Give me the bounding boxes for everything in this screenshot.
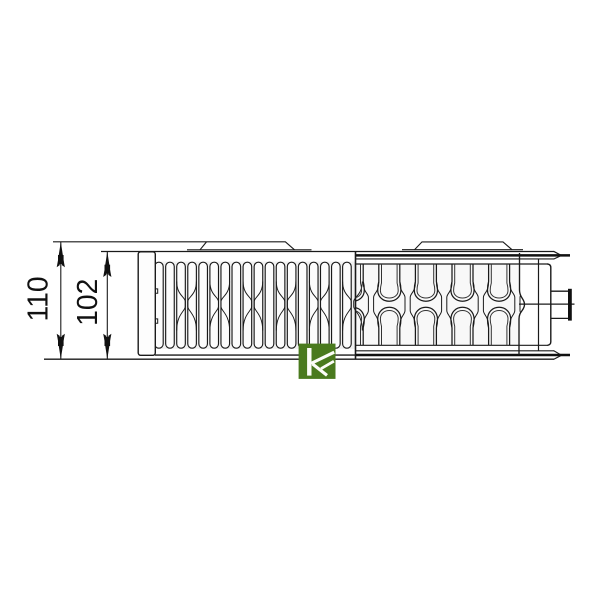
svg-text:102: 102 <box>71 279 103 326</box>
svg-text:110: 110 <box>21 276 53 321</box>
